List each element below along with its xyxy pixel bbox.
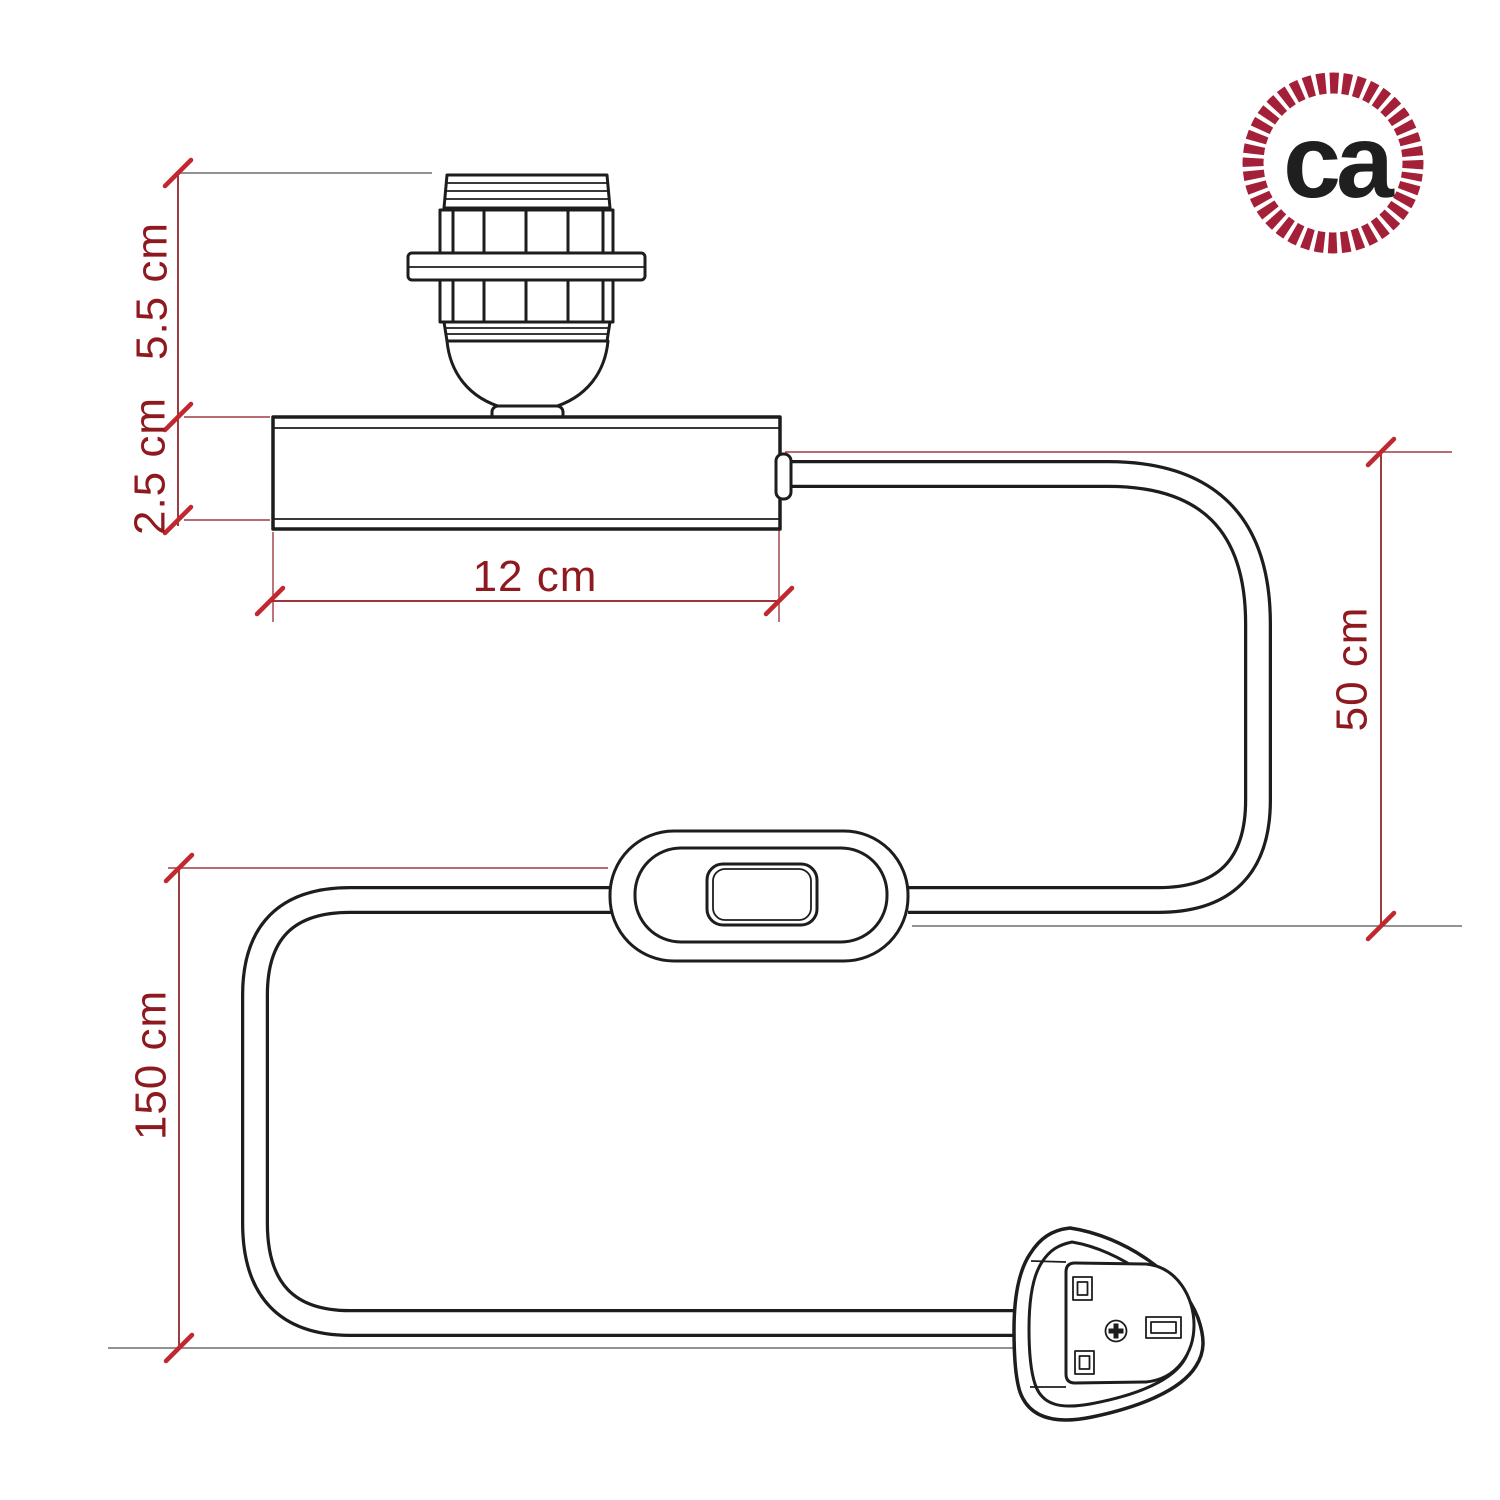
cable-switch-to-plug-core	[255, 900, 1022, 1323]
rocker-button	[707, 864, 817, 925]
lamp-holder	[408, 175, 645, 421]
lamp-base-assembly	[273, 175, 791, 529]
label-base-height: 2.5 cm	[126, 397, 175, 535]
cable-gland	[776, 454, 791, 499]
dimension-tick-marks	[165, 160, 1394, 1361]
base-body	[273, 417, 780, 529]
plug-pin-face	[1066, 1263, 1194, 1383]
plug-face-top-line	[1031, 1261, 1066, 1262]
uk-plug	[1014, 1228, 1203, 1420]
technical-drawing-canvas: 5.5 cm 2.5 cm 12 cm 50 cm 150 cm	[0, 0, 1500, 1500]
inline-switch	[610, 831, 908, 961]
holder-cup	[447, 341, 608, 408]
holder-lower-thread	[444, 322, 610, 341]
label-holder-height: 5.5 cm	[128, 222, 177, 360]
lamp-dimensions-diagram: 5.5 cm 2.5 cm 12 cm 50 cm 150 cm	[0, 0, 1500, 1500]
cylinder-base	[273, 417, 791, 529]
brand-logo: ca	[1238, 68, 1428, 258]
cable-switch-to-plug	[255, 900, 1022, 1323]
label-base-length: 12 cm	[473, 552, 598, 601]
label-cable-50cm: 50 cm	[1328, 607, 1377, 732]
logo-monogram: ca	[1283, 104, 1395, 220]
label-cable-150cm: 150 cm	[127, 990, 176, 1140]
plug-screw-cross-h	[1109, 1329, 1124, 1334]
